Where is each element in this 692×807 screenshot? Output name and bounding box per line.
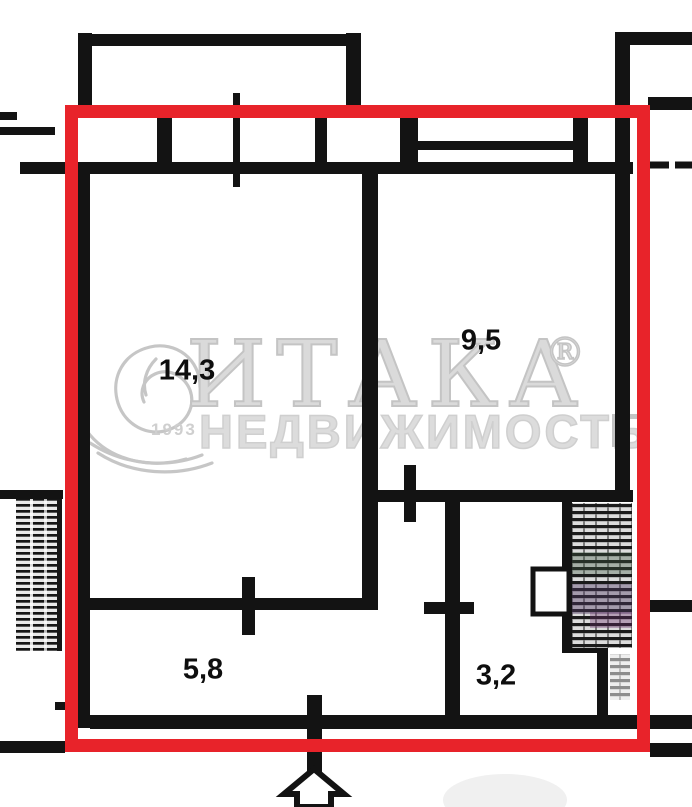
room-area-label-1: 14,3 [159, 355, 215, 388]
room-area-label-4: 3,2 [476, 660, 516, 693]
door-marks [242, 465, 474, 776]
room-area-label-2: 9,5 [461, 325, 501, 358]
floor-plan-drawing [0, 0, 692, 807]
room-area-label-3: 5,8 [183, 654, 223, 687]
staircase-hatch [0, 490, 63, 651]
entrance-arrow-icon [284, 769, 344, 807]
apartment-boundary-highlight [65, 105, 650, 752]
floor-plan-scan: ИТАКА ® НЕДВИЖИМОСТЬ 1993 [0, 0, 692, 807]
scan-smudge [443, 774, 567, 807]
bathroom-fixture-box [533, 569, 569, 614]
